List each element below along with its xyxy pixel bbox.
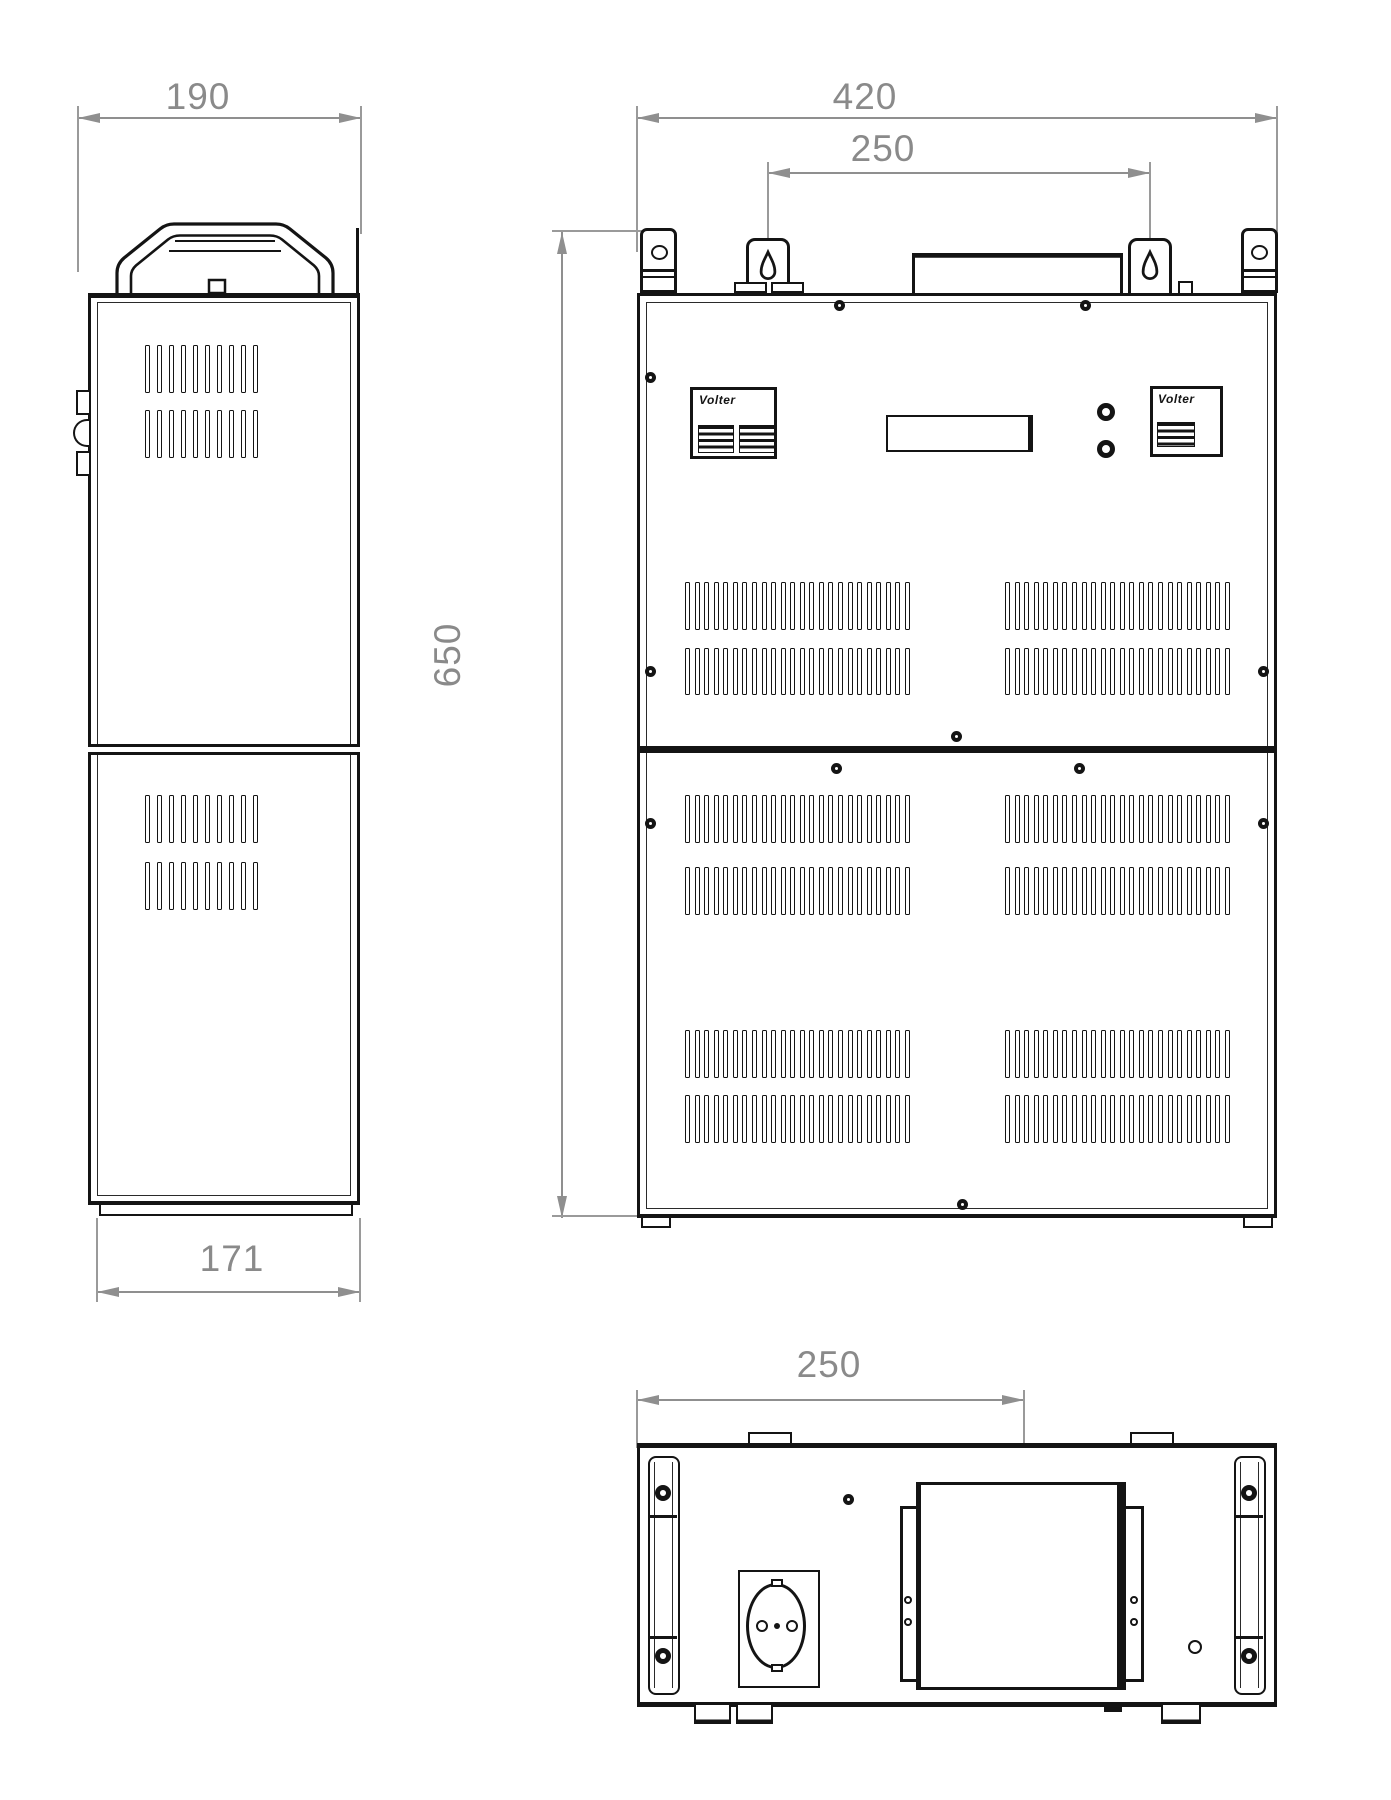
front-vent-row xyxy=(1005,582,1230,630)
keyhole-slot-icon xyxy=(1139,250,1161,286)
socket-pin-hole xyxy=(786,1620,798,1632)
side-knob xyxy=(73,419,89,447)
carry-handle-side xyxy=(105,216,345,294)
cable-hole xyxy=(1188,1640,1202,1654)
terminal-grill xyxy=(1157,422,1195,447)
front-vent-row xyxy=(685,582,910,630)
keyhole-bracket-right xyxy=(1128,238,1172,293)
control-module-left: Volter xyxy=(690,387,777,459)
socket-earth-tab xyxy=(771,1664,783,1672)
dim-arrow-190-left xyxy=(78,113,100,123)
front-vent-row xyxy=(1005,1095,1230,1143)
dim-arrow-250b-right xyxy=(1002,1395,1024,1405)
side-base-plate xyxy=(99,1205,353,1216)
bottom-foot xyxy=(736,1705,773,1724)
dim-line-420 xyxy=(637,117,1277,119)
rail-joint xyxy=(650,1636,677,1639)
bottom-foot xyxy=(1161,1705,1201,1724)
front-vent-row xyxy=(685,795,910,843)
screw xyxy=(843,1494,854,1505)
bottom-nub xyxy=(1104,1702,1122,1712)
top-notch xyxy=(1178,281,1193,293)
rail-joint xyxy=(1236,1636,1263,1639)
front-foot xyxy=(641,1218,671,1228)
front-panel-divider xyxy=(637,746,1277,753)
bracket-band xyxy=(1244,276,1275,278)
terminal-grill xyxy=(739,425,775,453)
dim-label-250-bottom: 250 xyxy=(781,1344,877,1386)
screw xyxy=(951,731,962,742)
dim-label-250-top: 250 xyxy=(835,128,931,170)
socket-earth-tab xyxy=(771,1579,783,1587)
bracket-band xyxy=(643,269,674,272)
dim-arrow-250t-left xyxy=(768,168,790,178)
mount-bracket-right xyxy=(1241,228,1278,293)
dim-label-171: 171 xyxy=(187,1238,277,1280)
rail-joint xyxy=(650,1515,677,1518)
side-vent-row xyxy=(145,795,258,843)
front-vent-row xyxy=(1005,1030,1230,1078)
dim-line-171 xyxy=(97,1291,360,1293)
terminal-grill xyxy=(698,425,734,453)
front-flange-profile xyxy=(356,228,359,294)
keyhole-foot xyxy=(734,282,767,293)
dim-ext-190-left xyxy=(77,106,79,272)
screw xyxy=(655,1485,671,1501)
bracket-hole-right xyxy=(1251,245,1268,260)
dim-arrow-190-right xyxy=(339,113,361,123)
top-cover-strip xyxy=(912,253,1123,293)
terminal-screw xyxy=(904,1618,912,1626)
dim-label-190: 190 xyxy=(153,76,243,118)
control-module-right: Volter xyxy=(1150,386,1223,457)
screw xyxy=(1258,666,1269,677)
rail-joint xyxy=(1236,1515,1263,1518)
socket-pin-hole xyxy=(756,1620,768,1632)
socket-center-pin xyxy=(774,1623,780,1629)
dim-line-650 xyxy=(561,232,563,1218)
dim-ext-650-top xyxy=(552,230,644,232)
dim-ext-171-left xyxy=(96,1218,98,1302)
terminal-screw xyxy=(904,1596,912,1604)
dim-ext-250b-left xyxy=(636,1390,638,1448)
screw xyxy=(655,1648,671,1664)
screw xyxy=(1258,818,1269,829)
side-vent-row xyxy=(145,410,258,458)
front-foot xyxy=(1243,1218,1273,1228)
bottom-foot xyxy=(694,1705,731,1724)
bracket-band xyxy=(1244,269,1275,272)
screw xyxy=(645,666,656,677)
screw xyxy=(1241,1648,1257,1664)
screw xyxy=(1241,1485,1257,1501)
side-vent-row xyxy=(145,862,258,910)
keyhole-foot xyxy=(771,282,804,293)
front-vent-row xyxy=(685,1095,910,1143)
screw xyxy=(645,372,656,383)
dim-arrow-171-right xyxy=(338,1287,360,1297)
front-vent-row xyxy=(1005,795,1230,843)
terminal-screw xyxy=(1130,1618,1138,1626)
screw xyxy=(1080,300,1091,311)
screw xyxy=(834,300,845,311)
terminal-screw xyxy=(1130,1596,1138,1604)
bracket-band xyxy=(643,276,674,278)
dim-label-650: 650 xyxy=(427,605,513,705)
front-vent-row xyxy=(685,648,910,695)
lcd-display-window xyxy=(886,415,1033,452)
dim-line-190 xyxy=(78,117,361,119)
side-switch-nub xyxy=(76,451,89,476)
screw xyxy=(645,818,656,829)
terminal-box-lid xyxy=(916,1482,1126,1690)
screw xyxy=(1074,763,1085,774)
screw xyxy=(957,1199,968,1210)
dim-line-250-bottom xyxy=(637,1399,1024,1401)
volter-logo-left: Volter xyxy=(699,393,736,407)
side-panel-divider xyxy=(88,744,360,755)
dim-line-250-top xyxy=(768,172,1150,174)
dim-arrow-420-right xyxy=(1255,113,1277,123)
dim-label-420: 420 xyxy=(817,76,913,118)
front-vent-row xyxy=(1005,648,1230,695)
front-vent-row xyxy=(685,1030,910,1078)
control-button-upper xyxy=(1097,403,1115,421)
side-vent-row xyxy=(145,345,258,393)
dim-arrow-250b-left xyxy=(637,1395,659,1405)
dim-arrow-420-left xyxy=(637,113,659,123)
dim-arrow-250t-right xyxy=(1128,168,1150,178)
front-vent-row xyxy=(1005,867,1230,915)
technical-drawing-sheet: 190 171 420 250 xyxy=(0,0,1391,1800)
keyhole-slot-icon xyxy=(757,250,779,286)
control-button-lower xyxy=(1097,440,1115,458)
dim-arrow-171-left xyxy=(97,1287,119,1297)
power-socket-plate xyxy=(738,1570,820,1688)
front-vent-row xyxy=(685,867,910,915)
volter-logo-right: Volter xyxy=(1158,392,1195,406)
dim-ext-650-bottom xyxy=(552,1215,640,1217)
bracket-hole-left xyxy=(651,245,668,260)
side-switch-nub xyxy=(76,390,89,415)
dim-arrow-650-top xyxy=(557,232,567,254)
dim-ext-171-right xyxy=(359,1218,361,1302)
screw xyxy=(831,763,842,774)
dim-ext-190-right xyxy=(360,106,362,234)
mount-bracket-left xyxy=(640,228,677,293)
